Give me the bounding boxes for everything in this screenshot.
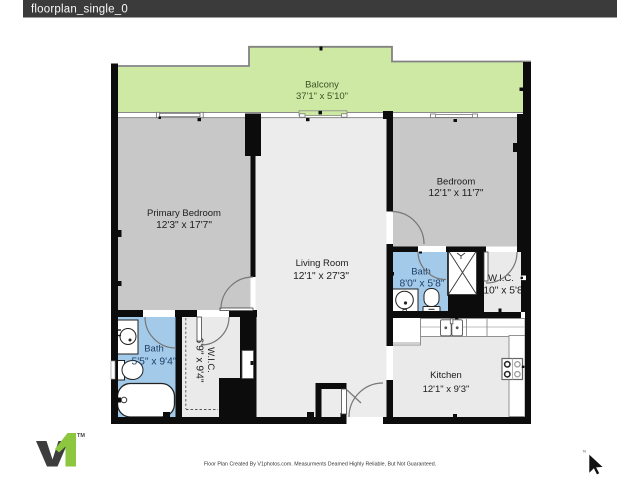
svg-text:12'3" x 17'7": 12'3" x 17'7": [156, 220, 212, 231]
svg-text:Floor Plan Created By V1photos: Floor Plan Created By V1photos.com. Meas…: [204, 462, 436, 468]
svg-text:W.I.C.: W.I.C.: [205, 347, 216, 373]
svg-text:Bath: Bath: [144, 344, 164, 355]
svg-text:37'1" x 5'10": 37'1" x 5'10": [296, 91, 348, 102]
svg-text:N: N: [583, 449, 586, 454]
svg-text:TM: TM: [77, 433, 85, 439]
svg-text:6'9" x 9'4": 6'9" x 9'4": [194, 337, 205, 382]
svg-text:12'1" x 11'7": 12'1" x 11'7": [428, 188, 483, 199]
svg-text:8'0" x 5'8": 8'0" x 5'8": [399, 279, 444, 290]
svg-text:Living Room: Living Room: [296, 258, 349, 269]
svg-text:Balcony: Balcony: [305, 80, 339, 91]
svg-text:12'1" x 9'3": 12'1" x 9'3": [423, 384, 470, 395]
svg-text:12'1" x 27'3": 12'1" x 27'3": [293, 271, 349, 282]
svg-text:Bedroom: Bedroom: [437, 177, 476, 188]
svg-text:Primary Bedroom: Primary Bedroom: [147, 208, 221, 219]
svg-text:Kitchen: Kitchen: [430, 370, 462, 381]
svg-text:5'5" x 9'4": 5'5" x 9'4": [131, 357, 176, 368]
svg-text:floorplan_single_0: floorplan_single_0: [31, 4, 128, 16]
svg-text:Bath: Bath: [411, 267, 431, 278]
